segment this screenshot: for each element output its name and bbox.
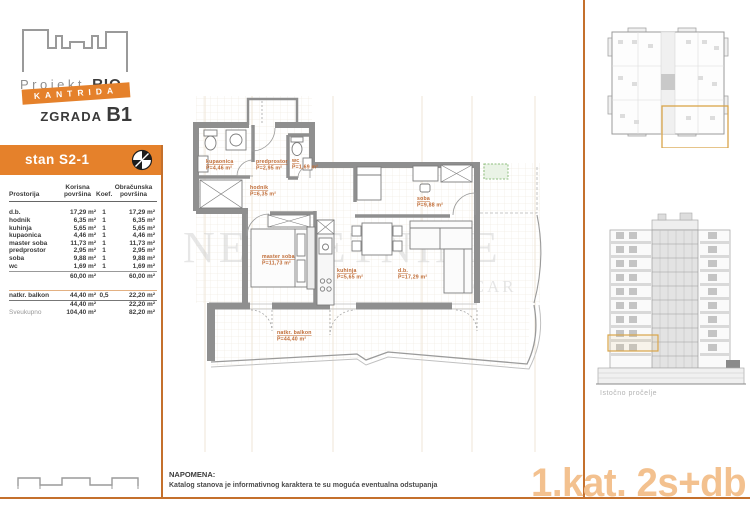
building-code: B1: [106, 104, 132, 126]
subtotal-billable: 60,00 m²: [112, 273, 155, 281]
subtotal-billable: 22,20 m²: [112, 301, 155, 309]
elevation-caption: Istočno pročelje: [600, 390, 657, 397]
total-label: Sveukupno: [9, 309, 59, 317]
room-billable: 1,69 m²: [112, 263, 155, 271]
room-coef: 1: [96, 263, 112, 271]
unit-header-band: stan S2-1: [0, 145, 161, 175]
total-useful: 104,40 m²: [59, 309, 96, 317]
room-useful: 11,73 m²: [59, 240, 96, 248]
floor-highlight-box: [608, 335, 658, 351]
area-table: Prostorija Korisna površina Koef. Obraču…: [9, 184, 157, 317]
building-name: ZGRADA B1: [20, 104, 132, 127]
room-name: kuhinja: [9, 225, 59, 233]
disclaimer-note: NAPOMENA: Katalog stanova je informativn…: [169, 470, 579, 489]
room-name: wc: [9, 263, 59, 271]
left-divider-line: [161, 145, 163, 498]
total-row: Sveukupno104,40 m²82,20 m²: [9, 309, 157, 317]
right-divider-line: [583, 0, 585, 498]
note-title: NAPOMENA:: [169, 470, 579, 479]
room-area-label: P=6,35 m²: [250, 192, 276, 198]
room-billable: 2,95 m²: [112, 247, 155, 255]
table-row: predprostor2,95 m²12,95 m²: [9, 247, 157, 255]
room-area-label: P=17,29 m²: [398, 275, 427, 281]
subtotal-balcony-row: 44,40 m²22,20 m²: [9, 301, 157, 309]
room-useful: 4,46 m²: [59, 232, 96, 240]
room-label: predprostor: [256, 159, 288, 165]
room-useful: 1,69 m²: [59, 263, 96, 271]
room-coef: 1: [96, 247, 112, 255]
room-useful: 9,88 m²: [59, 255, 96, 263]
table-row: d.b.17,29 m²117,29 m²: [9, 209, 157, 217]
subtotal-useful: 60,00 m²: [59, 273, 96, 281]
room-billable: 9,88 m²: [112, 255, 155, 263]
room-label: master soba: [262, 254, 295, 260]
scale-bar-icon: [14, 458, 144, 492]
room-label: wc: [291, 158, 299, 164]
room-label: d.b.: [398, 268, 408, 274]
col-header-room: Prostorija: [9, 191, 59, 198]
area-table-header: Prostorija Korisna površina Koef. Obraču…: [9, 184, 157, 202]
room-label: kupaonica: [206, 159, 233, 165]
room-area-label: P=2,95 m²: [256, 166, 282, 172]
room-area-label: P=11,73 m²: [262, 261, 291, 267]
room-useful: 17,29 m²: [59, 209, 96, 217]
table-row: master soba11,73 m²111,73 m²: [9, 240, 157, 248]
room-area-label: P=5,65 m²: [337, 275, 363, 281]
col-header-coef: Koef.: [96, 191, 112, 198]
room-useful: 44,40 m²: [59, 292, 96, 300]
subtotal-useful: 44,40 m²: [59, 301, 96, 309]
room-billable: 6,35 m²: [112, 217, 155, 225]
room-coef: 1: [96, 240, 112, 248]
room-coef: 1: [96, 255, 112, 263]
balcony-wall: [207, 303, 215, 361]
col-header-billable: Obračunska površina: [112, 184, 155, 198]
room-billable: 5,65 m²: [112, 225, 155, 233]
project-logo: Projekt RIO KANTRIDA ZGRADA B1: [20, 24, 140, 93]
room-name: d.b.: [9, 209, 59, 217]
room-name: master soba: [9, 240, 59, 248]
room-label: natkr. balkon: [277, 330, 312, 336]
room-useful: 6,35 m²: [59, 217, 96, 225]
room-useful: 2,95 m²: [59, 247, 96, 255]
note-body: Katalog stanova je informativnog karakte…: [169, 482, 579, 489]
room-name: natkr. balkon: [9, 292, 59, 300]
floor-plan: NEKRETNINE Z CAR: [170, 85, 570, 465]
room-name: soba: [9, 255, 59, 263]
table-row: soba9,88 m²19,88 m²: [9, 255, 157, 263]
room-name: hodnik: [9, 217, 59, 225]
room-area-label: P=9,88 m²: [417, 203, 443, 209]
building-plan-thumbnail: [598, 16, 738, 148]
building-elevation: [596, 210, 746, 395]
table-row: kupaonica4,46 m²14,46 m²: [9, 232, 157, 240]
room-area-label: P=44,40 m²: [277, 337, 306, 343]
floor-unit-tag: 1.kat. 2s+db: [531, 461, 746, 506]
room-billable: 17,29 m²: [112, 209, 155, 217]
balcony-row: natkr. balkon44,40 m²0,522,20 m²: [9, 290, 157, 302]
table-row: hodnik6,35 m²16,35 m²: [9, 217, 157, 225]
table-row: wc1,69 m²11,69 m²: [9, 263, 157, 271]
room-coef: 0,5: [96, 292, 112, 300]
room-name: kupaonica: [9, 232, 59, 240]
col-header-useful: Korisna površina: [59, 184, 96, 198]
compass-icon: [131, 149, 153, 171]
room-coef: 1: [96, 225, 112, 233]
room-name: predprostor: [9, 247, 59, 255]
room-coef: 1: [96, 209, 112, 217]
building-word: ZGRADA: [40, 109, 102, 124]
room-label: soba: [417, 196, 430, 202]
ac-unit-box: [484, 164, 508, 179]
room-billable: 4,46 m²: [112, 232, 155, 240]
room-label: hodnik: [250, 185, 268, 191]
room-coef: 1: [96, 232, 112, 240]
table-row: kuhinja5,65 m²15,65 m²: [9, 225, 157, 233]
room-billable: 22,20 m²: [112, 292, 155, 300]
unit-title: stan S2-1: [25, 145, 90, 175]
total-billable: 82,20 m²: [112, 309, 155, 317]
subtotal-interior-row: 60,00 m²60,00 m²: [9, 271, 157, 281]
room-useful: 5,65 m²: [59, 225, 96, 233]
room-billable: 11,73 m²: [112, 240, 155, 248]
room-label: kuhinja: [337, 268, 357, 274]
skyline-logo-icon: [20, 24, 130, 74]
room-coef: 1: [96, 217, 112, 225]
room-area-label: P=4,46 m²: [206, 166, 232, 172]
room-area-label: P=1,69 m²: [292, 165, 318, 171]
